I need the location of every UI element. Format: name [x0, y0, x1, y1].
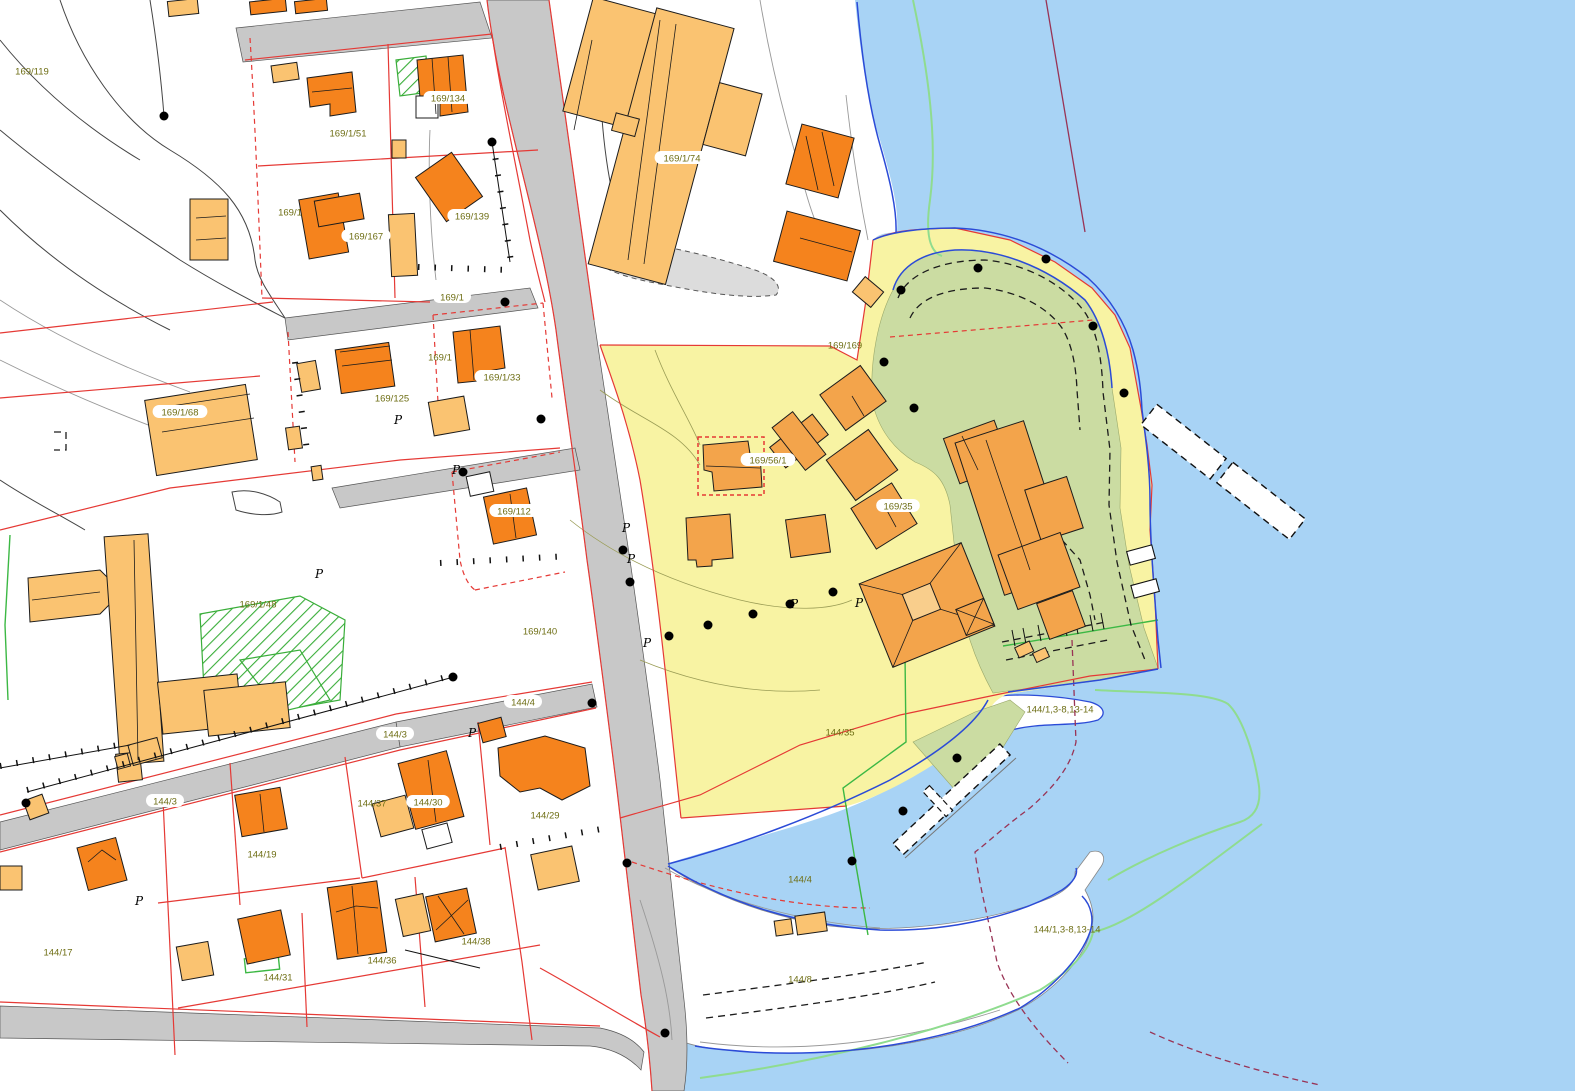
boundary-point — [974, 264, 983, 273]
road-label: 169/1/74 — [664, 154, 701, 165]
road-label: 169/56/1 — [750, 456, 787, 467]
boundary-point — [897, 286, 906, 295]
parcel-label: 144/35 — [825, 728, 854, 739]
boundary-point — [623, 859, 632, 868]
boundary-point — [1120, 389, 1129, 398]
boundary-point — [626, 578, 635, 587]
parcel-label: 169/1/48 — [240, 600, 277, 611]
parking-symbol: P — [314, 567, 324, 581]
road-label: 169/1 — [440, 293, 464, 304]
parcel-label: 169/1 — [428, 353, 452, 364]
parcel-label: 144/19 — [247, 850, 276, 861]
road-label: 144/30 — [413, 798, 442, 809]
road-label: 169/139 — [455, 212, 489, 223]
parcel-label: 169/119 — [15, 67, 49, 78]
road-bottom — [0, 1006, 644, 1070]
road-label: 169/1/33 — [484, 373, 521, 384]
parcel-label: 169/140 — [523, 627, 557, 638]
parcel-label: 144/17 — [43, 948, 72, 959]
boundary-point — [899, 807, 908, 816]
parcel-label: 144/1,3-8,13-14 — [1026, 705, 1093, 716]
boundary-point — [665, 632, 674, 641]
boundary-point — [953, 754, 962, 763]
parking-symbol: P — [626, 552, 636, 566]
parcel-label: 144/31 — [263, 973, 292, 984]
road-label: 169/134 — [431, 94, 465, 105]
road-label: 169/112 — [497, 507, 531, 518]
road-144-3 — [0, 722, 400, 850]
boundary-point — [22, 799, 31, 808]
parcel-label: 144/38 — [461, 937, 490, 948]
parcel-label: 144/36 — [367, 956, 396, 967]
boundary-point — [749, 610, 758, 619]
parking-symbol: P — [134, 894, 144, 908]
parcel-label: 144/8 — [788, 975, 812, 986]
parking-symbol: P — [854, 596, 864, 610]
boundary-point — [501, 298, 510, 307]
boundary-point — [588, 699, 597, 708]
boundary-point — [661, 1029, 670, 1038]
parking-symbol: P — [642, 636, 652, 650]
road-side — [332, 448, 580, 508]
road-label: 169/167 — [349, 232, 383, 243]
boundary-point — [848, 857, 857, 866]
road-label: 144/3 — [153, 797, 177, 808]
road-label: 144/4 — [511, 698, 535, 709]
boundary-point — [537, 415, 546, 424]
road-label: 169/35 — [883, 502, 912, 513]
map-svg: PPPPPPPPPP 169/119169/1/51169/1169/1169/… — [0, 0, 1575, 1091]
road-label: 144/3 — [383, 730, 407, 741]
boundary-point — [160, 112, 169, 121]
parking-symbol: P — [621, 521, 631, 535]
map-canvas[interactable]: PPPPPPPPPP 169/119169/1/51169/1169/1169/… — [0, 0, 1575, 1091]
boundary-point — [488, 138, 497, 147]
boundary-point — [1042, 255, 1051, 264]
parking-symbol: P — [789, 597, 799, 611]
parking-symbol: P — [393, 413, 403, 427]
boundary-point — [910, 404, 919, 413]
parcel-label: 144/4 — [788, 875, 812, 886]
boundary-point — [449, 673, 458, 682]
parcel-label: 169/125 — [375, 394, 409, 405]
parcel-label: 169/169 — [828, 341, 862, 352]
boundary-point — [880, 358, 889, 367]
parking-symbol: P — [467, 726, 477, 740]
parcel-label: 169/1/51 — [330, 129, 367, 140]
parcel-label: 144/29 — [530, 811, 559, 822]
parcel-label: 144/1,3-8,13-14 — [1033, 925, 1100, 936]
road-label: 169/1/68 — [162, 408, 199, 419]
boundary-point — [1089, 322, 1098, 331]
parcel-label: 144/37 — [357, 799, 386, 810]
boundary-point — [704, 621, 713, 630]
parking-symbol: P — [451, 463, 461, 477]
boundary-point — [829, 588, 838, 597]
parcel-label: 169/1 — [278, 208, 302, 219]
